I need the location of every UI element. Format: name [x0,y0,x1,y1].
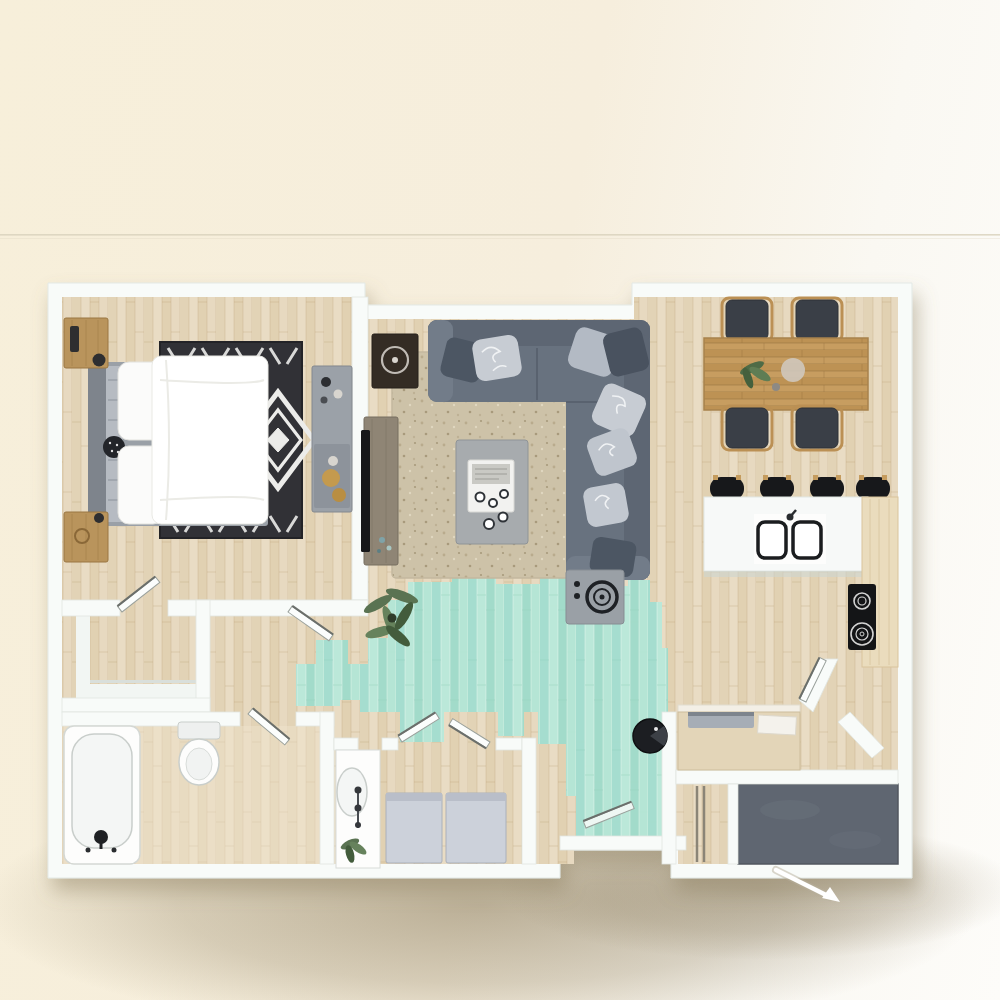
floor-plan-scene [0,0,1000,1000]
vanity-sink [336,750,380,868]
wall-patio-west [728,784,738,864]
washer [386,793,442,863]
toilet [178,722,220,785]
bathtub [64,726,140,864]
desk [678,705,800,770]
dining-chair [722,298,772,342]
tv-console [361,417,398,565]
sink-basin [758,522,786,558]
wall-bathroom-east [320,712,334,864]
nightstand-top [64,318,108,368]
patio-storage [738,784,898,864]
dining-chair [722,406,772,450]
wall-laundry-east [522,738,536,864]
dining-chair [792,298,842,342]
dresser [312,366,352,512]
laptop [688,714,754,728]
wall-patio-north [676,770,898,784]
dining-chair [792,406,842,450]
floor-plan-canvas [0,0,1000,1000]
dryer [446,793,506,863]
sink-basin [793,522,821,558]
wall-bedroom-south [62,600,120,616]
tv [361,430,370,552]
side-table [566,570,624,624]
wall-art [372,334,418,388]
duvet [152,356,268,524]
floor-plan [48,283,912,902]
desk-chair [633,719,667,753]
nightstand-bottom [64,512,108,562]
wall-closet-south [62,698,210,712]
lamp [70,326,79,352]
wall-vanity-north [334,738,358,750]
laundry-closet [386,793,506,863]
coffee-table [456,440,528,544]
kitchen-island [704,497,868,577]
entry-closet [678,784,728,864]
headboard [88,360,106,528]
paper [758,715,797,735]
background-divider-line [0,234,1000,236]
wall-closet-east [196,600,210,712]
